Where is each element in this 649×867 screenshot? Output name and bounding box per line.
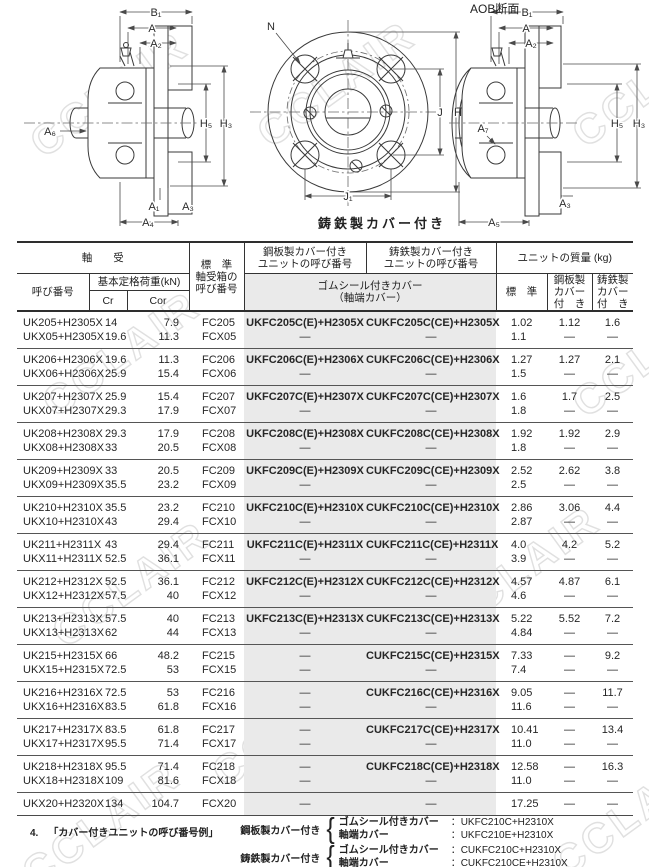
table-cell: FCX08 <box>189 441 244 460</box>
catalog-page: CCLAIR CCLAIR CCLAIR CCLAIR CCLAIR CCLAI… <box>0 0 649 867</box>
table-cell: CUKFC208C(CE)+H2308X <box>366 423 496 442</box>
table-cell: 2.62 <box>547 460 592 479</box>
table-cell: 23.2 <box>127 497 189 516</box>
table-cell: — <box>547 478 592 497</box>
table-cell: — <box>366 441 496 460</box>
table-cell: — <box>547 404 592 423</box>
header-part-no: 呼び番号 <box>17 274 89 312</box>
table-cell: 53 <box>127 682 189 701</box>
table-cell: 29.4 <box>127 515 189 534</box>
table-cell: 81.6 <box>127 774 189 793</box>
table-cell: UK215+H2315X <box>17 645 89 664</box>
table-cell: — <box>592 330 633 349</box>
table-cell: FC216 <box>189 682 244 701</box>
table-cell: 12.58 <box>496 756 547 775</box>
table-cell: UKFC206C(E)+H2306X <box>244 349 366 368</box>
table-cell: UK205+H2305X <box>17 311 89 330</box>
dim-label-a: A <box>522 23 530 35</box>
table-cell: 4.2 <box>547 534 592 553</box>
table-cell: — <box>244 330 366 349</box>
footnote-item-value: ：UKFC210C+H2310X <box>451 816 554 829</box>
table-cell: FC205 <box>189 311 244 330</box>
table-cell: 7.2 <box>592 608 633 627</box>
table-cell: 29.4 <box>127 534 189 553</box>
table-cell: CUKFC206C(CE)+H2306X <box>366 349 496 368</box>
footnote-entry-cast: 鋳鉄製カバー付き { ゴムシール付きカバー ：CUKFC210C+H2310X … <box>240 844 567 867</box>
dim-label-j: J <box>437 107 443 119</box>
front-view-caption: 鋳鉄製カバー付き <box>318 213 518 232</box>
brace-glyph: { <box>326 815 334 844</box>
table-cell: 20.5 <box>127 441 189 460</box>
table-row: UKX15+H2315X72.553FCX15——7.4—— <box>17 663 633 682</box>
dim-label-j1: J₁ <box>343 191 353 203</box>
table-cell: FCX13 <box>189 626 244 645</box>
footnote-item-value: ：CUKFC210CE+H2310X <box>451 857 568 867</box>
table-row: UK212+H2312X52.536.1FC212UKFC212C(E)+H23… <box>17 571 633 590</box>
table-cell: 1.1 <box>496 330 547 349</box>
table-cell: 11.3 <box>127 330 189 349</box>
table-cell: 9.05 <box>496 682 547 701</box>
footnote-entry-steel: 鋼板製カバー付き { ゴムシール付きカバー ：UKFC210C+H2310X 軸… <box>240 816 567 842</box>
table-row: UKX13+H2313X6244FCX13——4.84—— <box>17 626 633 645</box>
table-cell: UKX11+H2311X <box>17 552 89 571</box>
table-cell: FCX09 <box>189 478 244 497</box>
table-cell: 2.5 <box>496 478 547 497</box>
header-cr: Cr <box>89 290 127 311</box>
table-cell: UKX09+H2309X <box>17 478 89 497</box>
table-cell: UKX17+H2317X <box>17 737 89 756</box>
table-cell: UK208+H2308X <box>17 423 89 442</box>
table-cell: 15.4 <box>127 367 189 386</box>
header-mass-cast: 鋳鉄製 カバー 付 き <box>592 274 633 312</box>
table-cell: 23.2 <box>127 478 189 497</box>
table-cell: 2.86 <box>496 497 547 516</box>
diagram-strip: B₁ A A₂ H₅ H₃ A₆ A₁ A₃ A₄ <box>0 0 649 238</box>
table-cell: FC217 <box>189 719 244 738</box>
table-cell: 17.9 <box>127 404 189 423</box>
table-cell: UK212+H2312X <box>17 571 89 590</box>
dim-label-a6: A₆ <box>44 126 56 138</box>
table-cell: 36.1 <box>127 571 189 590</box>
table-cell: UKX16+H2316X <box>17 700 89 719</box>
table-cell: 4.57 <box>496 571 547 590</box>
table-cell: 44 <box>127 626 189 645</box>
table-row: UK213+H2313X57.540FC213UKFC213C(E)+H2313… <box>17 608 633 627</box>
table-cell: UKX20+H2320X <box>17 793 89 816</box>
table-row: UK211+H2311X4329.4FC211UKFC211C(E)+H2311… <box>17 534 633 553</box>
table-cell: — <box>592 367 633 386</box>
table-cell: FCX17 <box>189 737 244 756</box>
table-cell: UKFC211C(E)+H2311X <box>244 534 366 553</box>
table-cell: — <box>547 367 592 386</box>
table-cell: — <box>592 478 633 497</box>
table-row: UK210+H2310X35.523.2FC210UKFC210C(E)+H23… <box>17 497 633 516</box>
table-cell: FC209 <box>189 460 244 479</box>
table-cell: UK209+H2309X <box>17 460 89 479</box>
table-cell: — <box>244 719 366 738</box>
table-cell: 1.5 <box>496 367 547 386</box>
brace-glyph: { <box>326 843 334 867</box>
table-cell: FC218 <box>189 756 244 775</box>
dim-label-h5: H₅ <box>611 118 623 130</box>
bearing-spec-table: 軸 受 標 準 軸受箱の 呼び番号 鋼板製カバー付き ユニットの呼び番号 鋳鉄製… <box>17 241 633 816</box>
table-cell: 9.2 <box>592 645 633 664</box>
footnote-item-value: ：UKFC210E+H2310X <box>451 829 554 842</box>
table-cell: 36.1 <box>127 552 189 571</box>
table-cell: — <box>244 645 366 664</box>
table-cell: CUKFC205C(CE)+H2305X <box>366 311 496 330</box>
table-cell: — <box>592 774 633 793</box>
table-cell: UKFC213C(E)+H2313X <box>244 608 366 627</box>
table-cell: UKX15+H2315X <box>17 663 89 682</box>
footnote-item-value: ：CUKFC210C+H2310X <box>451 844 561 857</box>
table-cell: — <box>547 682 592 701</box>
dim-label-a2: A₂ <box>150 38 162 50</box>
table-cell: FCX07 <box>189 404 244 423</box>
table-row: UKX17+H2317X95.571.4FCX17——11.0—— <box>17 737 633 756</box>
table-cell: UK216+H2316X <box>17 682 89 701</box>
table-cell: UK210+H2310X <box>17 497 89 516</box>
table-cell: 3.8 <box>592 460 633 479</box>
table-cell: CUKFC216C(CE)+H2316X <box>366 682 496 701</box>
table-cell: UK218+H2318X <box>17 756 89 775</box>
table-cell: — <box>366 700 496 719</box>
table-cell: — <box>592 626 633 645</box>
table-cell: FC206 <box>189 349 244 368</box>
table-cell: UKFC212C(E)+H2312X <box>244 571 366 590</box>
table-cell: 11.3 <box>127 349 189 368</box>
table-cell: 53 <box>127 663 189 682</box>
aob-section-title: AOB断面 <box>470 0 519 17</box>
table-cell: — <box>592 737 633 756</box>
table-cell: — <box>366 589 496 608</box>
table-cell: — <box>244 700 366 719</box>
table-row: UKX09+H2309X35.523.2FCX09——2.5—— <box>17 478 633 497</box>
dim-label-h3: H₃ <box>633 118 645 130</box>
table-cell: — <box>592 793 633 816</box>
table-cell: 2.9 <box>592 423 633 442</box>
table-cell: 7.9 <box>127 311 189 330</box>
table-cell: — <box>547 645 592 664</box>
table-row: UKX16+H2316X83.561.8FCX16——11.6—— <box>17 700 633 719</box>
table-cell: — <box>366 515 496 534</box>
table-cell: CUKFC217C(CE)+H2317X <box>366 719 496 738</box>
table-cell: FCX05 <box>189 330 244 349</box>
table-row: UKX18+H2318X10981.6FCX18——11.0—— <box>17 774 633 793</box>
table-cell: CUKFC213C(CE)+H2313X <box>366 608 496 627</box>
header-bearing-group: 軸 受 <box>17 242 189 274</box>
dim-label-a7: A₇ <box>477 123 488 135</box>
dim-label-h5: H₅ <box>200 118 212 130</box>
table-cell: — <box>244 441 366 460</box>
table-cell: 11.0 <box>496 737 547 756</box>
footnote-heading: 4.「カバー付きユニットの呼び番号例」 <box>30 824 218 839</box>
table-cell: — <box>244 515 366 534</box>
table-row: UKX07+H2307X29.317.9FCX07——1.8—— <box>17 404 633 423</box>
table-cell: 11.6 <box>496 700 547 719</box>
footnote-item-label: 軸端カバー <box>339 829 451 842</box>
table-cell: — <box>366 552 496 571</box>
table-cell: FCX18 <box>189 774 244 793</box>
table-row: UK217+H2317X83.561.8FC217—CUKFC217C(CE)+… <box>17 719 633 738</box>
table-cell: 1.02 <box>496 311 547 330</box>
table-cell: 71.4 <box>127 756 189 775</box>
table-row: UKX10+H2310X4329.4FCX10——2.87—— <box>17 515 633 534</box>
spec-table-body: UK205+H2305X147.9FC205UKFC205C(E)+H2305X… <box>17 311 633 816</box>
table-cell: UKX10+H2310X <box>17 515 89 534</box>
table-cell: — <box>366 478 496 497</box>
header-mass-steel: 鋼板製 カバー 付 き <box>547 274 592 312</box>
table-cell: 17.25 <box>496 793 547 816</box>
table-cell: — <box>244 756 366 775</box>
header-steel-cover-unit: 鋼板製カバー付き ユニットの呼び番号 <box>244 242 366 274</box>
table-cell: CUKFC207C(CE)+H2307X <box>366 386 496 405</box>
table-cell: — <box>547 737 592 756</box>
table-cell: UKX12+H2312X <box>17 589 89 608</box>
table-cell: 4.84 <box>496 626 547 645</box>
table-cell: 20.5 <box>127 460 189 479</box>
table-cell: UKX05+H2305X <box>17 330 89 349</box>
table-cell: CUKFC218C(CE)+H2318X <box>366 756 496 775</box>
table-cell: 1.92 <box>547 423 592 442</box>
header-load-rating: 基本定格荷重(kN) <box>89 274 189 291</box>
dim-label-b1: B₁ <box>150 7 161 19</box>
table-cell: 1.8 <box>496 441 547 460</box>
header-rubber-seal-cover: ゴムシール付きカバー （軸端カバー） <box>244 274 496 312</box>
table-cell: — <box>244 626 366 645</box>
table-cell: CUKFC215C(CE)+H2315X <box>366 645 496 664</box>
table-cell: 11.0 <box>496 774 547 793</box>
footnote: 4.「カバー付きユニットの呼び番号例」 鋼板製カバー付き { ゴムシール付きカバ… <box>30 816 630 867</box>
footnote-number: 4. <box>30 828 38 839</box>
table-cell: UKFC209C(E)+H2309X <box>244 460 366 479</box>
table-cell: 3.06 <box>547 497 592 516</box>
table-row: UK209+H2309X3320.5FC209UKFC209C(E)+H2309… <box>17 460 633 479</box>
table-cell: 40 <box>127 608 189 627</box>
table-cell: CUKFC211C(CE)+H2311X <box>366 534 496 553</box>
table-cell: 71.4 <box>127 737 189 756</box>
header-cor: Cor <box>127 290 189 311</box>
table-cell: 5.2 <box>592 534 633 553</box>
table-cell: — <box>592 589 633 608</box>
table-cell: 17.9 <box>127 423 189 442</box>
table-row: UKX12+H2312X57.540FCX12——4.6—— <box>17 589 633 608</box>
table-cell: 11.7 <box>592 682 633 701</box>
table-cell: 2.52 <box>496 460 547 479</box>
table-cell: CUKFC210C(CE)+H2310X <box>366 497 496 516</box>
footnote-title: 「カバー付きユニットの呼び番号例」 <box>48 828 218 839</box>
table-cell: — <box>547 441 592 460</box>
table-cell: — <box>366 626 496 645</box>
table-cell: FCX15 <box>189 663 244 682</box>
table-cell: 16.3 <box>592 756 633 775</box>
table-cell: UK207+H2307X <box>17 386 89 405</box>
table-cell: UKX06+H2306X <box>17 367 89 386</box>
table-cell: UKX07+H2307X <box>17 404 89 423</box>
header-housing-no: 標 準 軸受箱の 呼び番号 <box>189 242 244 311</box>
table-cell: UK213+H2313X <box>17 608 89 627</box>
table-cell: 7.4 <box>496 663 547 682</box>
table-row: UKX11+H2311X52.536.1FCX11——3.9—— <box>17 552 633 571</box>
table-row: UKX05+H2305X19.611.3FCX05——1.1—— <box>17 330 633 349</box>
table-cell: — <box>366 793 496 816</box>
table-cell: 5.22 <box>496 608 547 627</box>
table-cell: FC210 <box>189 497 244 516</box>
table-cell: — <box>366 330 496 349</box>
table-cell: 7.33 <box>496 645 547 664</box>
dim-label-n: N <box>267 21 275 33</box>
table-cell: FC211 <box>189 534 244 553</box>
table-cell: 1.7 <box>547 386 592 405</box>
table-cell: UKX08+H2308X <box>17 441 89 460</box>
table-cell: — <box>547 774 592 793</box>
table-cell: UK217+H2317X <box>17 719 89 738</box>
table-cell: 1.92 <box>496 423 547 442</box>
footnote-item-label: ゴムシール付きカバー <box>339 816 451 829</box>
table-cell: FC213 <box>189 608 244 627</box>
table-cell: — <box>244 404 366 423</box>
table-cell: 2.5 <box>592 386 633 405</box>
table-cell: 4.0 <box>496 534 547 553</box>
table-cell: FCX12 <box>189 589 244 608</box>
table-cell: 13.4 <box>592 719 633 738</box>
dim-label-a1: A₁ <box>148 201 159 213</box>
table-cell: 4.6 <box>496 589 547 608</box>
table-cell: — <box>592 515 633 534</box>
footnote-entry-type: 鋼板製カバー付き <box>240 822 320 837</box>
table-cell: 4.87 <box>547 571 592 590</box>
table-cell: — <box>592 700 633 719</box>
table-cell: UK211+H2311X <box>17 534 89 553</box>
dim-label-a2: A₂ <box>525 38 537 50</box>
table-cell: — <box>547 700 592 719</box>
table-cell: 5.52 <box>547 608 592 627</box>
table-cell: UKFC210C(E)+H2310X <box>244 497 366 516</box>
table-cell: 4.4 <box>592 497 633 516</box>
table-cell: 2.1 <box>592 349 633 368</box>
table-cell: 61.8 <box>127 700 189 719</box>
table-cell: UKX13+H2313X <box>17 626 89 645</box>
table-cell: — <box>366 737 496 756</box>
table-cell: — <box>547 756 592 775</box>
table-cell: FCX10 <box>189 515 244 534</box>
table-cell: 10.41 <box>496 719 547 738</box>
table-cell: FC207 <box>189 386 244 405</box>
table-cell: FC212 <box>189 571 244 590</box>
table-cell: 48.2 <box>127 645 189 664</box>
table-cell: 40 <box>127 589 189 608</box>
header-mass-standard: 標 準 <box>496 274 547 312</box>
footnote-entry-type: 鋳鉄製カバー付き <box>240 850 320 865</box>
table-cell: 61.8 <box>127 719 189 738</box>
table-cell: FC208 <box>189 423 244 442</box>
header-unit-mass: ユニットの質量 (kg) <box>496 242 633 274</box>
table-row: UK207+H2307X25.915.4FC207UKFC207C(E)+H23… <box>17 386 633 405</box>
table-cell: FCX16 <box>189 700 244 719</box>
table-cell: FC215 <box>189 645 244 664</box>
table-cell: FCX11 <box>189 552 244 571</box>
table-cell: FCX20 <box>189 793 244 816</box>
table-cell: 1.27 <box>547 349 592 368</box>
table-cell: — <box>547 330 592 349</box>
table-cell: 1.27 <box>496 349 547 368</box>
table-cell: 1.6 <box>496 386 547 405</box>
table-cell: 3.9 <box>496 552 547 571</box>
dim-label-a: A <box>148 23 156 35</box>
table-row: UKX08+H2308X3320.5FCX08——1.8—— <box>17 441 633 460</box>
table-cell: — <box>244 663 366 682</box>
table-cell: FCX06 <box>189 367 244 386</box>
footnote-item-label: 軸端カバー <box>339 857 451 867</box>
table-row: UK215+H2315X6648.2FC215—CUKFC215C(CE)+H2… <box>17 645 633 664</box>
table-cell: CUKFC209C(CE)+H2309X <box>366 460 496 479</box>
table-row: UK206+H2306X19.611.3FC206UKFC206C(E)+H23… <box>17 349 633 368</box>
table-cell: — <box>547 663 592 682</box>
table-header: 軸 受 標 準 軸受箱の 呼び番号 鋼板製カバー付き ユニットの呼び番号 鋳鉄製… <box>17 242 633 311</box>
table-cell: 2.87 <box>496 515 547 534</box>
table-cell: — <box>547 719 592 738</box>
footnote-item-label: ゴムシール付きカバー <box>339 844 451 857</box>
table-cell: — <box>547 626 592 645</box>
table-row: UKX20+H2320X134104.7FCX20——17.25—— <box>17 793 633 816</box>
header-cast-cover-unit: 鋳鉄製カバー付き ユニットの呼び番号 <box>366 242 496 274</box>
table-cell: — <box>547 589 592 608</box>
table-cell: — <box>592 404 633 423</box>
table-cell: — <box>244 367 366 386</box>
aob-section-diagram: B₁ A A₂ H₅ H₃ A₇ A₃ A₅ <box>449 0 649 236</box>
table-cell: UKFC207C(E)+H2307X <box>244 386 366 405</box>
table-cell: 104.7 <box>127 793 189 816</box>
table-cell: 6.1 <box>592 571 633 590</box>
dim-label-a4: A₄ <box>142 217 154 229</box>
side-section-diagram: B₁ A A₂ H₅ H₃ A₆ A₁ A₃ A₄ <box>8 0 243 236</box>
table-row: UKX06+H2306X25.915.4FCX06——1.5—— <box>17 367 633 386</box>
table-cell: — <box>244 589 366 608</box>
table-cell: — <box>547 552 592 571</box>
table-cell: 1.6 <box>592 311 633 330</box>
table-cell: — <box>244 478 366 497</box>
table-cell: — <box>244 682 366 701</box>
dim-label-a3: A₃ <box>559 198 571 210</box>
table-cell: — <box>592 441 633 460</box>
table-cell: — <box>547 515 592 534</box>
dim-label-h3: H₃ <box>220 118 232 130</box>
dim-label-b1: B₁ <box>521 7 532 19</box>
table-cell: 1.8 <box>496 404 547 423</box>
table-cell: UKX18+H2318X <box>17 774 89 793</box>
table-row: UK205+H2305X147.9FC205UKFC205C(E)+H2305X… <box>17 311 633 330</box>
table-cell: UKFC205C(E)+H2305X <box>244 311 366 330</box>
table-cell: — <box>244 774 366 793</box>
table-row: UK208+H2308X29.317.9FC208UKFC208C(E)+H23… <box>17 423 633 442</box>
dim-label-a3: A₃ <box>182 201 194 213</box>
table-cell: — <box>592 552 633 571</box>
table-cell: — <box>366 774 496 793</box>
table-cell: — <box>244 793 366 816</box>
table-cell: UKFC208C(E)+H2308X <box>244 423 366 442</box>
table-row: UK218+H2318X95.571.4FC218—CUKFC218C(CE)+… <box>17 756 633 775</box>
table-cell: 1.12 <box>547 311 592 330</box>
table-cell: — <box>366 663 496 682</box>
table-row: UK216+H2316X72.553FC216—CUKFC216C(CE)+H2… <box>17 682 633 701</box>
table-cell: — <box>366 404 496 423</box>
table-cell: — <box>547 793 592 816</box>
table-cell: — <box>244 737 366 756</box>
table-cell: CUKFC212C(CE)+H2312X <box>366 571 496 590</box>
front-view-diagram: N J H J₁ <box>240 14 475 214</box>
table-cell: — <box>592 663 633 682</box>
table-cell: UK206+H2306X <box>17 349 89 368</box>
